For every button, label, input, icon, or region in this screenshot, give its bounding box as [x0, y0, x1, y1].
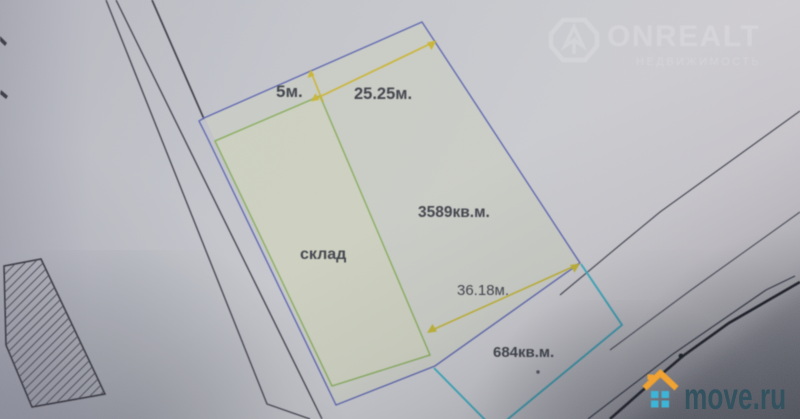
svg-text:move.ru: move.ru	[684, 376, 786, 418]
